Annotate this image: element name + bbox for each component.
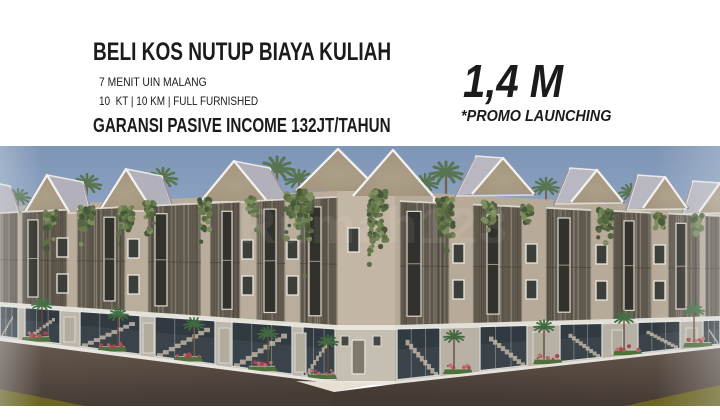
svg-text:Rumah123: Rumah123 xyxy=(240,198,509,254)
